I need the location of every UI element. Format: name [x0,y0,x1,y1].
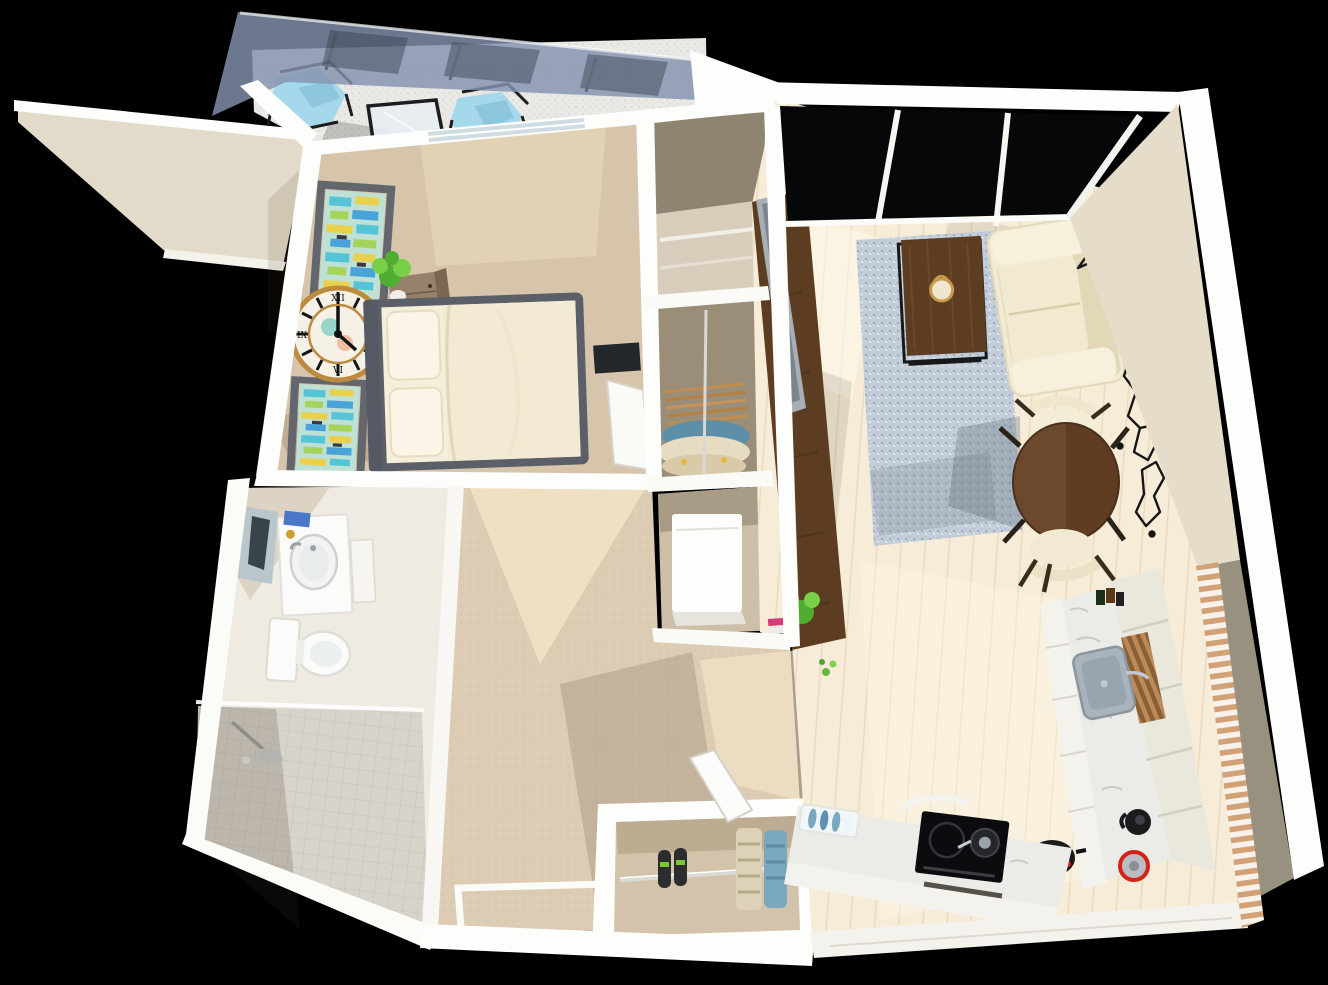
wardrobe [656,296,768,478]
vanity [277,514,352,616]
hanging-organizers [736,828,787,910]
closet-rod [704,310,706,474]
duvet [443,301,580,462]
bed [363,292,589,472]
toilet-tank [266,618,300,682]
bedroom-sun-patch [420,126,606,266]
bath-shelf [350,539,375,602]
clock-numeral-9: IX [297,331,308,341]
red-pot [1120,852,1148,880]
shower-caddy [283,511,310,528]
bedroom: XII III VI IX [262,118,654,483]
bedroom-tv [593,342,641,373]
bedroom-door-open [607,380,650,470]
pillow [389,387,443,457]
floorplan-render: XII III VI IX [0,0,1328,985]
coffee-table [898,236,987,364]
closet-a-shadow [654,112,766,214]
clock-numeral-6: VI [332,366,343,376]
pillow [387,310,441,380]
cooktop [915,811,1010,883]
clock-numeral-12: XII [331,294,345,304]
abstract-art-bottom [290,380,365,484]
floorplan-svg: XII III VI IX [0,0,1328,985]
